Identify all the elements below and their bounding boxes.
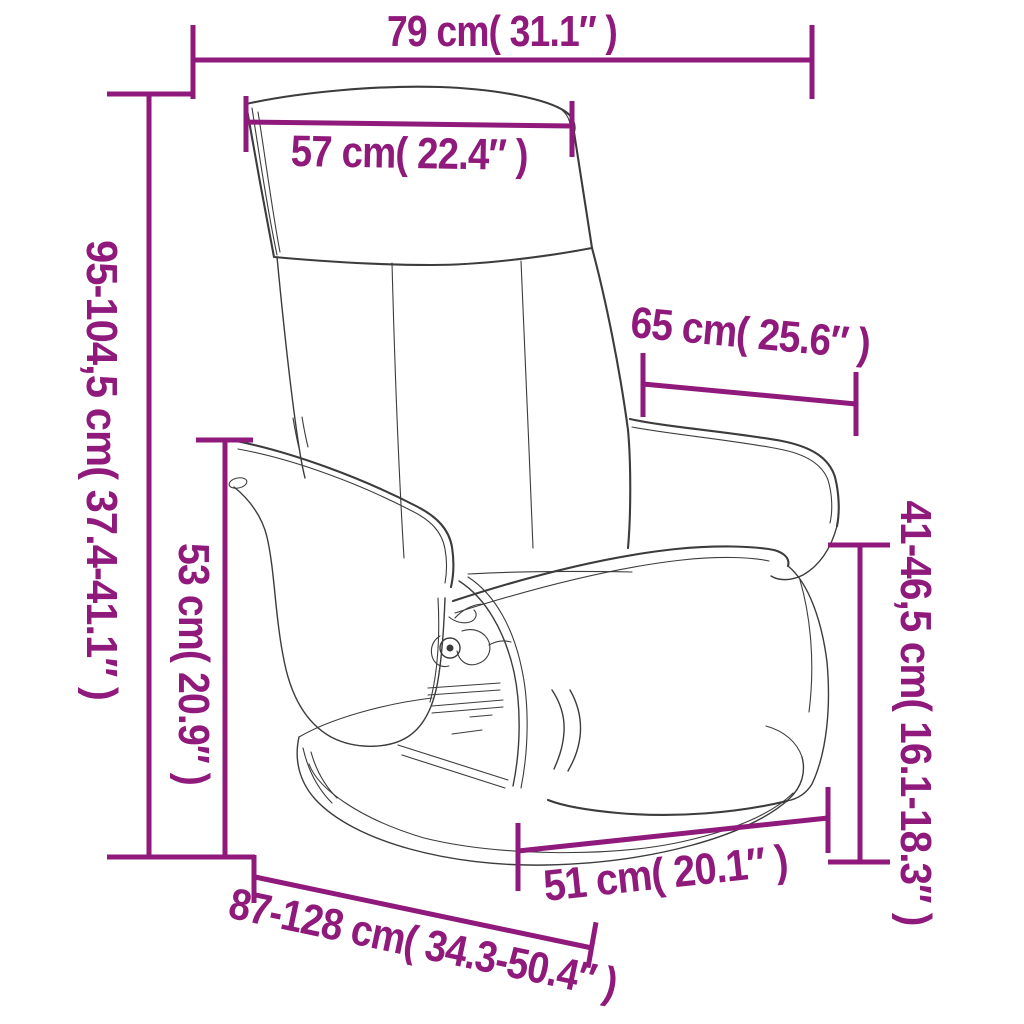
base-left-tip-detail [303, 748, 337, 803]
backrest-seam-right [521, 261, 533, 548]
base-top-arc-left [299, 698, 432, 737]
dimension-seat-width-label: 51 cm( 20.1″ ) [541, 836, 790, 911]
backrest-right-edge [592, 248, 630, 548]
mechanism-bracket [457, 630, 490, 665]
dimension-overall-height: 95-104,5 cm( 37.4-41.1″ ) [77, 94, 255, 857]
dimension-overall-height-label: 95-104,5 cm( 37.4-41.1″ ) [77, 240, 126, 700]
mechanism-hub-dot [447, 645, 454, 652]
dimension-diagram: 79 cm( 31.1″ ) 57 cm( 22.4″ ) 95-104,5 c… [0, 0, 1024, 1024]
backrest-left-edge [277, 257, 305, 478]
right-armrest-face-line [800, 580, 812, 712]
left-armrest-top-piping [238, 449, 447, 583]
footrest-slats [428, 683, 503, 734]
left-armrest-face [234, 487, 445, 746]
dimension-backrest-depth-line [643, 353, 856, 436]
dimension-backrest-depth-label: 65 cm( 25.6″ ) [629, 298, 873, 369]
dimension-seat-height-line [828, 545, 890, 862]
headrest-side-fold-line [252, 108, 277, 255]
diagram-canvas: 79 cm( 31.1″ ) 57 cm( 22.4″ ) 95-104,5 c… [0, 0, 1024, 1024]
seat-back-edge [453, 546, 788, 601]
seat-front-bottom-edge [548, 800, 787, 815]
mechanism-link [449, 604, 511, 645]
dimension-armrest-height: 53 cm( 20.9″ ) [169, 440, 253, 857]
dimension-top-width-label: 79 cm( 31.1″ ) [387, 7, 617, 56]
right-armrest-top-piping [632, 427, 832, 523]
dimension-annotations: 79 cm( 31.1″ ) 57 cm( 22.4″ ) 95-104,5 c… [77, 7, 940, 1009]
pedestal-stem [552, 690, 581, 771]
seat-right-silhouette [787, 566, 828, 801]
base-far-rim-through-gap [398, 745, 508, 788]
dimension-headrest-width-label: 57 cm( 22.4″ ) [290, 127, 528, 180]
dimension-backrest-depth: 65 cm( 25.6″ ) [629, 298, 873, 436]
dimension-headrest-width: 57 cm( 22.4″ ) [246, 96, 572, 180]
right-armrest-top-swoosh [630, 419, 839, 526]
base-top-arc-right [766, 726, 802, 757]
chair-illustration [228, 87, 839, 865]
dimension-top-width: 79 cm( 31.1″ ) [193, 7, 812, 99]
left-armrest-end-curl [228, 476, 248, 490]
left-armrest-top-rail [236, 441, 453, 587]
dimension-seat-height-label: 41-46,5 cm( 16.1-18.3″ ) [891, 501, 940, 926]
backrest-seam-left [392, 263, 404, 558]
dimension-armrest-height-label: 53 cm( 20.9″ ) [169, 543, 218, 785]
dimension-seat-height: 41-46,5 cm( 16.1-18.3″ ) [828, 501, 940, 926]
